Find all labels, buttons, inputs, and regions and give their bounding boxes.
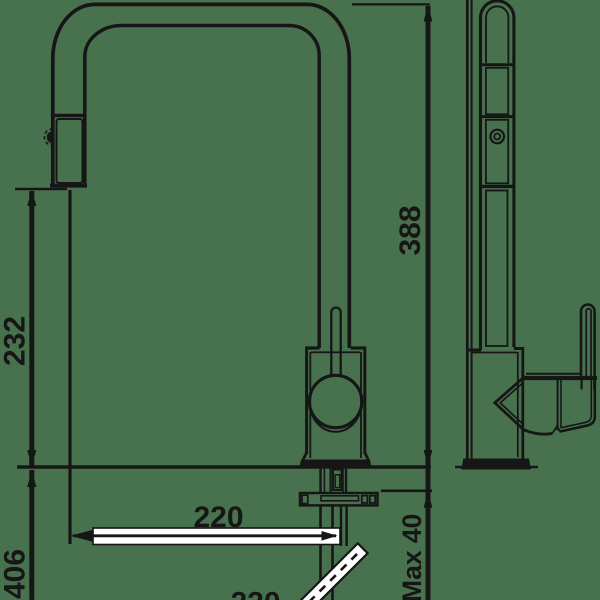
svg-text:220: 220 <box>193 501 243 534</box>
svg-text:388: 388 <box>394 205 427 255</box>
svg-text:220: 220 <box>230 587 280 600</box>
svg-text:406: 406 <box>0 549 32 599</box>
svg-text:Max 40: Max 40 <box>397 514 427 600</box>
svg-text:232: 232 <box>0 316 32 366</box>
